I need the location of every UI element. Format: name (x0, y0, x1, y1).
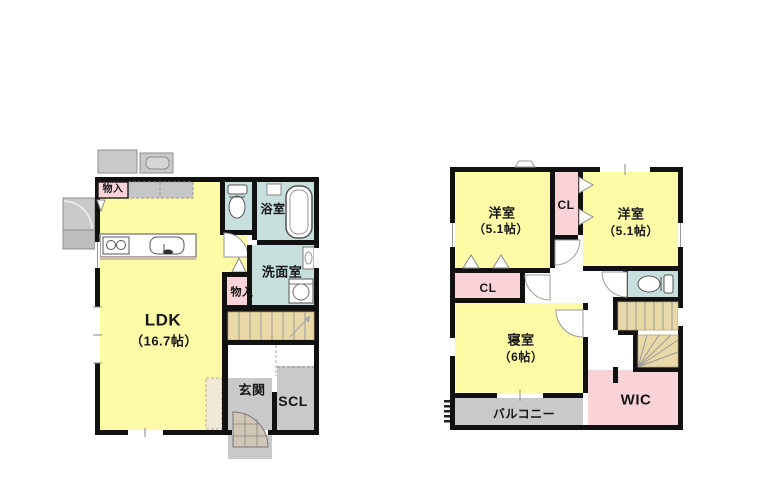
floorplan-page: 物入 浴室 洗面室 物入 LDK （16.7帖） 玄関 SCL 洋室 （5.1帖… (0, 0, 768, 499)
label-western-left-size: （5.1帖） (473, 223, 529, 235)
label-bath: 浴室 (260, 203, 285, 215)
label-western-left: 洋室 (488, 207, 515, 220)
bathtub-icon (286, 186, 312, 238)
label-closet-center: CL (558, 199, 575, 211)
label-balcony: バルコニー (493, 408, 555, 420)
washing-machine-icon (289, 279, 313, 303)
label-western-right: 洋室 (617, 208, 644, 221)
vanity-icon (303, 247, 314, 269)
label-storage2: 物入 (231, 288, 254, 299)
label-storage1: 物入 (103, 185, 124, 195)
ldk-step-strip (206, 378, 222, 429)
label-washroom: 洗面室 (262, 266, 303, 279)
balcony-hatch (444, 400, 450, 423)
toilet-icon (638, 275, 673, 293)
label-ldk: LDK (145, 312, 181, 329)
label-western-right-size: （5.1帖） (603, 225, 659, 237)
label-ldk-size: （16.7帖） (130, 335, 198, 348)
toilet-icon (228, 185, 247, 218)
exterior-units (98, 150, 173, 173)
label-closet-lower: CL (480, 282, 497, 294)
room-ldk (100, 182, 222, 430)
exterior-side-door (63, 198, 95, 249)
label-wic: WIC (621, 393, 652, 408)
floor1-plan (60, 145, 325, 465)
stairs-icon (228, 312, 314, 340)
kitchen-counter-icon (100, 234, 196, 260)
label-scl: SCL (278, 394, 308, 408)
label-bedroom: 寝室 (507, 334, 534, 347)
label-entrance: 玄関 (238, 384, 265, 397)
label-bedroom-size: （6帖） (499, 351, 544, 363)
